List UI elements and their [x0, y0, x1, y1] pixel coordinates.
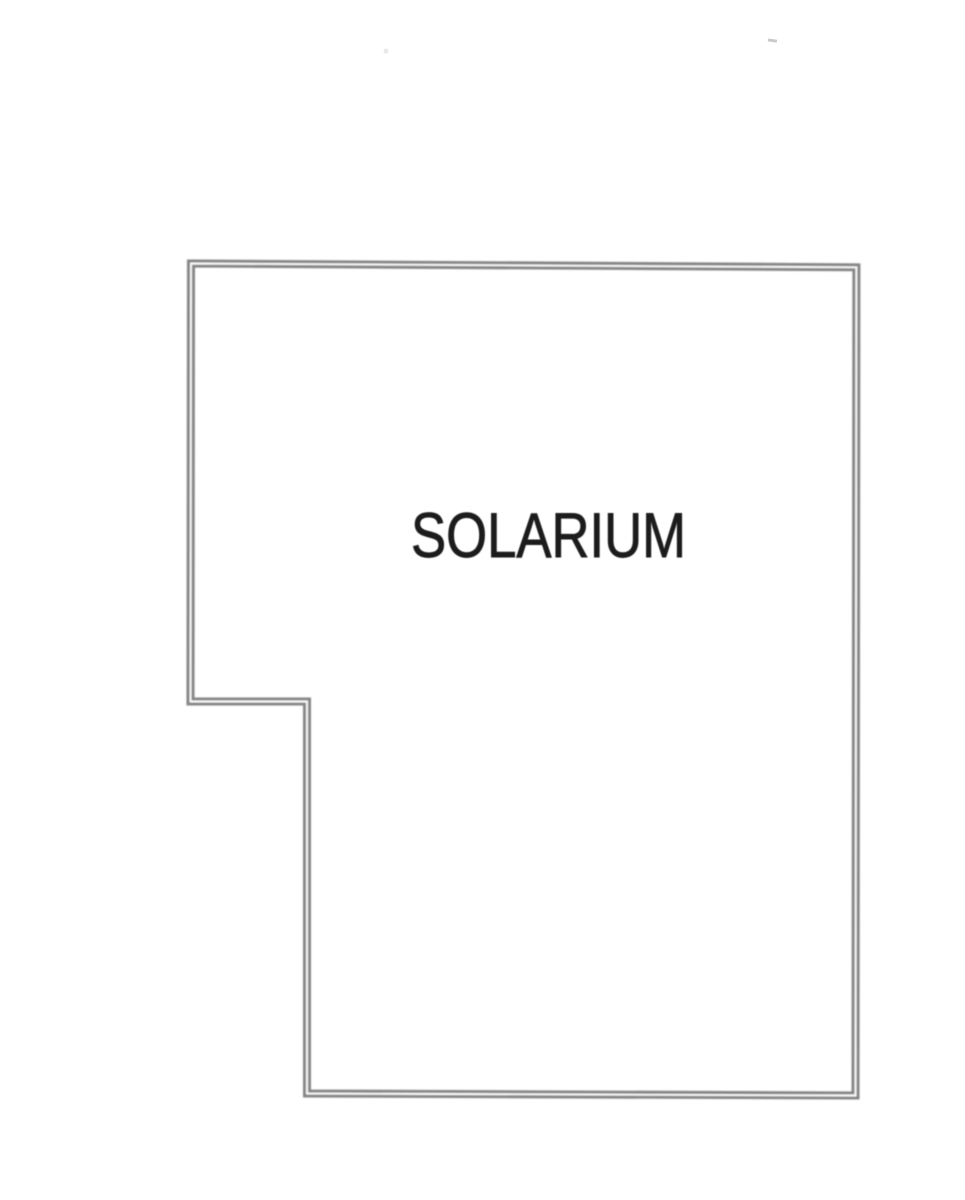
svg-text:SOLARIUM: SOLARIUM [411, 501, 686, 571]
